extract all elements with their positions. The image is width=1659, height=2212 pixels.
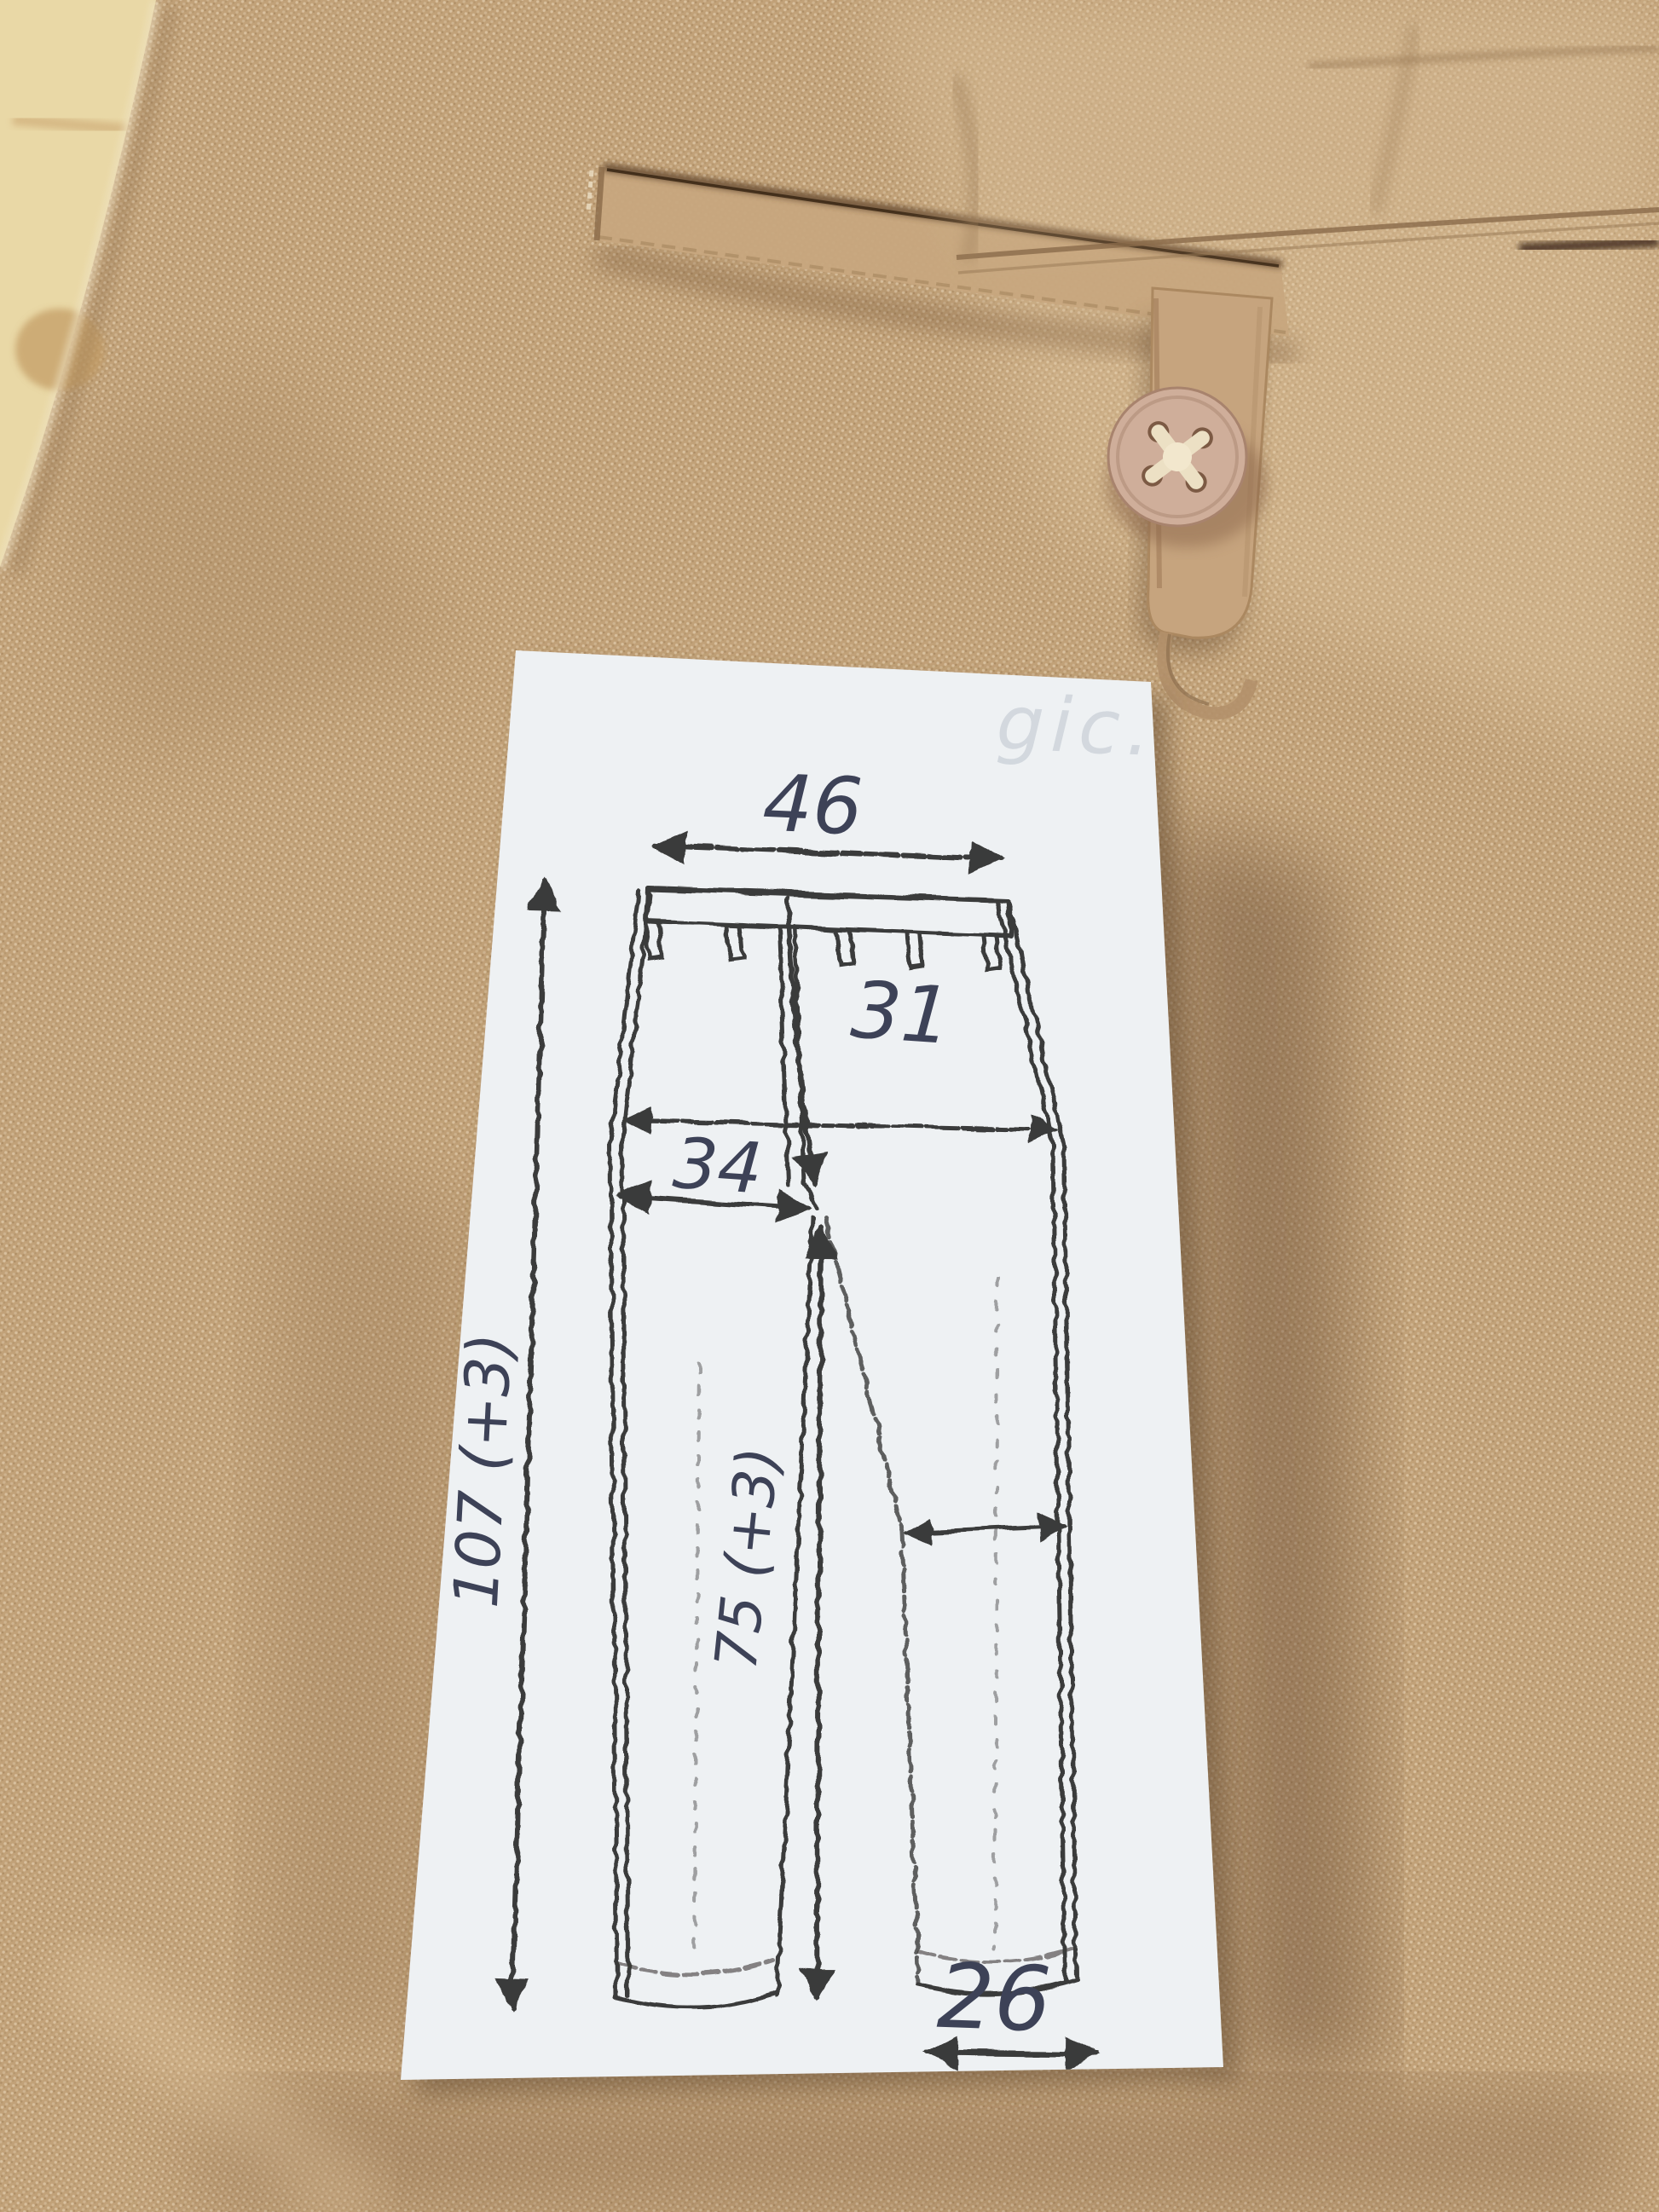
pocket-mouth-shadow (1519, 241, 1659, 249)
paper-watermark-text: gic. (995, 679, 1159, 773)
rise-measurement-label: 31 (848, 964, 954, 1062)
paper-card: gic. (401, 650, 1238, 2094)
waistband (853, 0, 1659, 273)
hem-measurement-label: 26 (935, 1944, 1053, 2053)
fabric-shadow-bottom (205, 2084, 1620, 2212)
hip-half-measurement-label: 34 (671, 1123, 766, 1210)
hem-width-arrow (928, 2053, 1096, 2054)
photo-scene: gic. (0, 0, 1659, 2212)
paper-sheet (401, 650, 1223, 2080)
waist-measurement-label: 46 (761, 758, 865, 853)
